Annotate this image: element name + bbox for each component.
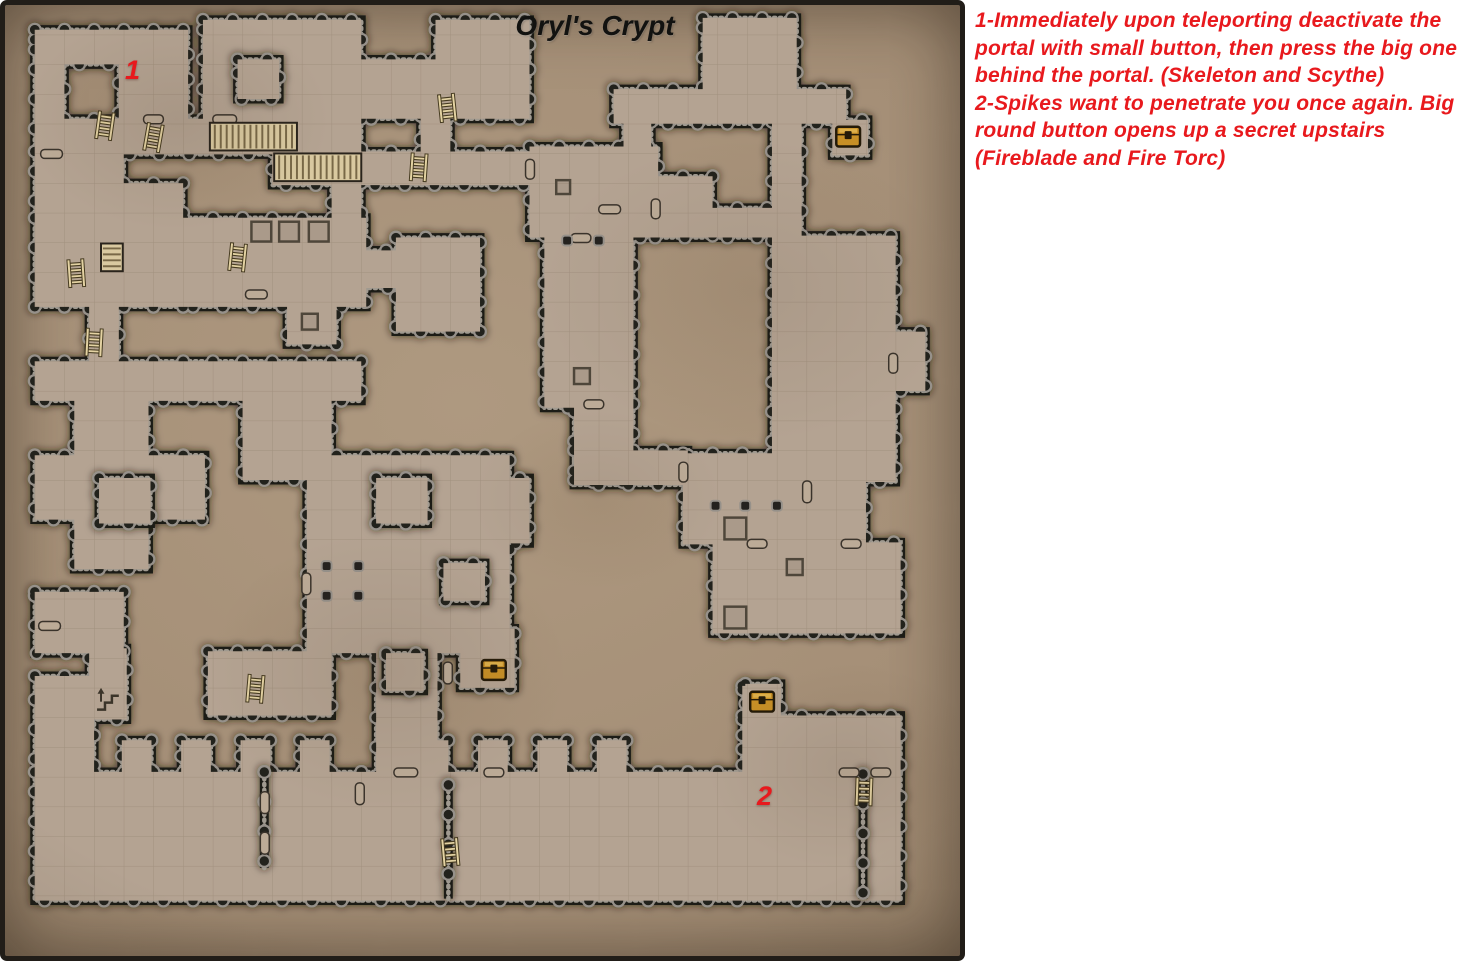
door-icon: [679, 462, 688, 482]
note-2: 2-Spikes want to penetrate you once agai…: [975, 90, 1476, 173]
map-marker-1: 1: [125, 57, 140, 84]
pit-icon: [279, 222, 299, 242]
door-icon: [889, 353, 898, 373]
pillar-icon: [562, 236, 572, 246]
pit-icon: [251, 222, 271, 242]
door-icon: [571, 234, 591, 243]
door-icon: [841, 539, 861, 548]
door-icon: [839, 768, 859, 777]
door-icon: [526, 159, 535, 179]
door-icon: [41, 149, 63, 158]
door-icon: [355, 783, 364, 805]
door-icon: [484, 768, 504, 777]
pillar-icon: [594, 236, 604, 246]
door-icon: [302, 573, 311, 595]
door-icon: [443, 662, 452, 684]
door-icon: [394, 768, 418, 777]
note-1: 1-Immediately upon teleporting deactivat…: [975, 7, 1476, 90]
map-marker-2: 2: [757, 783, 772, 810]
door-icon: [260, 792, 269, 814]
pillar-icon: [322, 561, 332, 571]
pit-icon: [309, 222, 329, 242]
door-icon: [39, 622, 61, 631]
pit-icon: [724, 607, 746, 629]
pit-icon: [724, 518, 746, 540]
stairs-icon: [101, 243, 123, 271]
map-title: Oryl's Crypt: [385, 10, 805, 42]
chest-icon: [750, 692, 774, 712]
pillar-icon: [353, 591, 363, 601]
door-icon: [871, 768, 891, 777]
door-icon: [144, 115, 164, 124]
pit-icon: [574, 368, 590, 384]
chest-icon: [836, 127, 860, 147]
dungeon-map-panel: Oryl's Crypt 1 2: [0, 0, 965, 961]
door-icon: [599, 205, 621, 214]
door-icon: [584, 400, 604, 409]
screenshot-root: Oryl's Crypt 1 2 1-Immediately upon tele…: [0, 0, 1478, 961]
stairs-icon: [274, 153, 361, 181]
dungeon-map-svg: [5, 5, 960, 956]
pit-icon: [556, 180, 570, 194]
pillar-icon: [322, 591, 332, 601]
chest-icon: [482, 660, 506, 680]
door-icon: [651, 199, 660, 219]
pillar-icon: [772, 501, 782, 511]
pillar-icon: [740, 501, 750, 511]
pit-icon: [302, 314, 318, 330]
door-icon: [803, 481, 812, 503]
notes-panel: 1-Immediately upon teleporting deactivat…: [965, 0, 1478, 961]
door-icon: [747, 539, 767, 548]
pillar-icon: [711, 501, 721, 511]
stairs-icon: [210, 123, 297, 151]
door-icon: [245, 290, 267, 299]
pillar-icon: [353, 561, 363, 571]
door-icon: [260, 832, 269, 854]
pit-icon: [787, 559, 803, 575]
